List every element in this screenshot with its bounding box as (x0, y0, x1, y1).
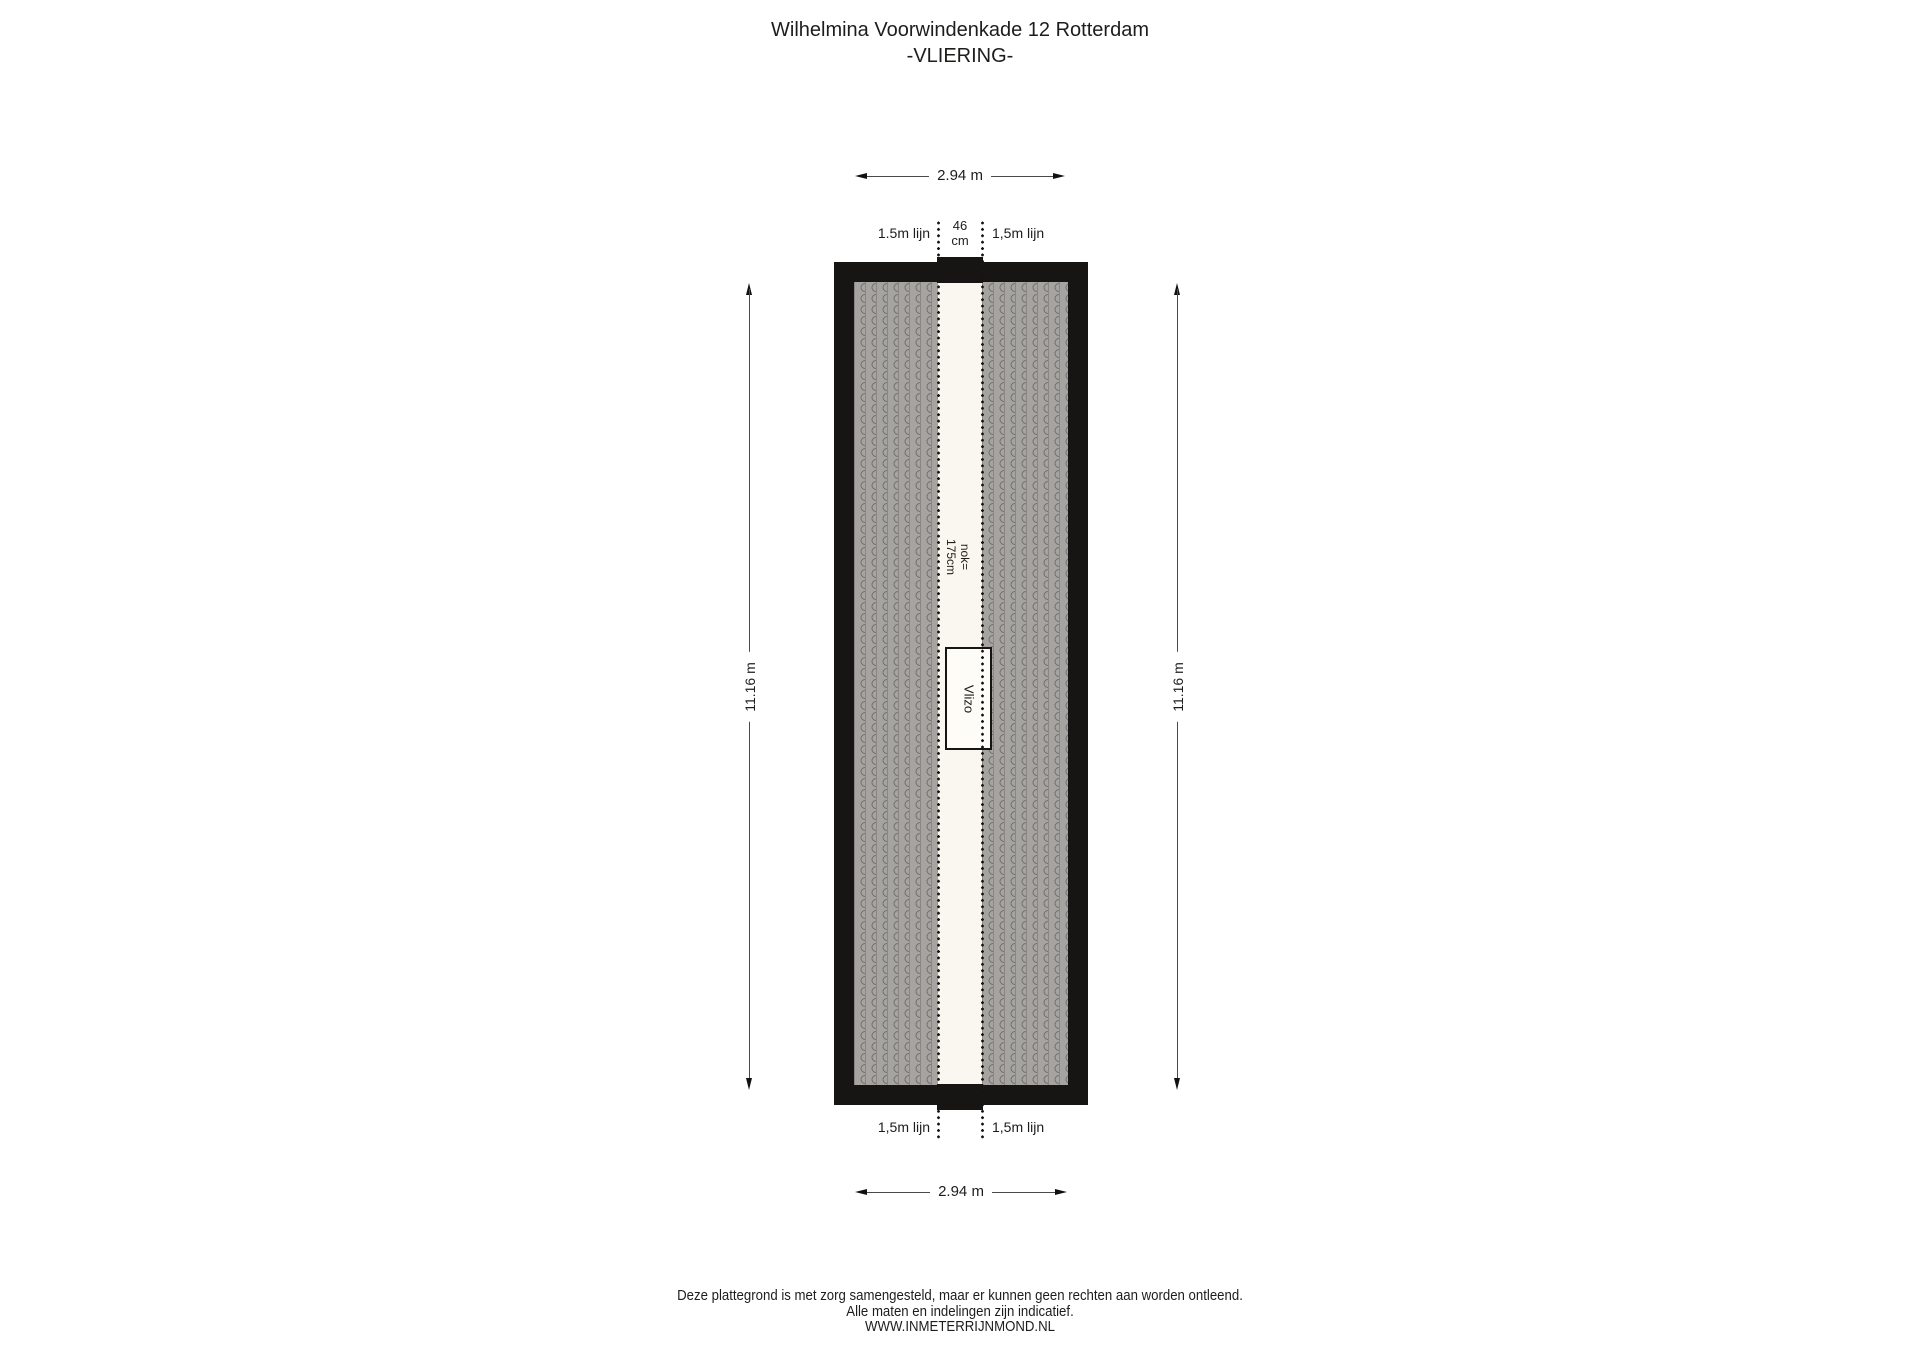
ridge-gap-value: 46 (940, 218, 980, 233)
wall-notch-bottom (937, 1084, 983, 1110)
headroom-dotted-line-right (981, 220, 984, 1140)
roof-slope-hatch-left (854, 282, 938, 1085)
dimension-height-left: 11.16 m (745, 283, 754, 1090)
dimension-line (867, 1192, 930, 1193)
loft-ladder-label: Vlizo (961, 684, 976, 712)
dimension-height-left-label: 11.16 m (739, 652, 761, 722)
arrow-down-icon (1174, 1078, 1180, 1090)
dimension-line (992, 1192, 1055, 1193)
loft-ladder-hatch: Vlizo (945, 647, 992, 750)
title-floor-name: -VLIERING- (0, 43, 1920, 69)
dimension-line (991, 176, 1053, 177)
headroom-label-bottom-right: 1,5m lijn (992, 1119, 1082, 1135)
arrow-down-icon (746, 1078, 752, 1090)
headroom-label-top-left: 1.5m lijn (845, 225, 930, 241)
footer-disclaimer: Deze plattegrond is met zorg samengestel… (115, 1288, 1805, 1335)
ridge-height-line1: nok= (958, 539, 972, 575)
dimension-height-right: 11.16 m (1173, 283, 1182, 1090)
roof-slope-hatch-right (982, 282, 1068, 1085)
headroom-label-bottom-left: 1,5m lijn (845, 1119, 930, 1135)
dimension-width-top: 2.94 m (855, 168, 1065, 184)
floorplan-page: Wilhelmina Voorwindenkade 12 Rotterdam -… (0, 0, 1920, 1358)
title-address: Wilhelmina Voorwindenkade 12 Rotterdam (0, 17, 1920, 43)
dimension-line (867, 176, 929, 177)
dimension-width-bottom-label: 2.94 m (930, 1184, 992, 1200)
arrow-right-icon (1055, 1189, 1067, 1195)
arrow-right-icon (1053, 173, 1065, 179)
page-title: Wilhelmina Voorwindenkade 12 Rotterdam -… (0, 17, 1920, 69)
ridge-height-label: nok= 175cm (944, 539, 972, 575)
dimension-width-bottom: 2.94 m (855, 1184, 1067, 1200)
arrow-left-icon (855, 1189, 867, 1195)
ridge-height-line2: 175cm (944, 539, 958, 575)
headroom-dotted-line-left (937, 220, 940, 1140)
headroom-label-top-right: 1,5m lijn (992, 225, 1082, 241)
footer-website: WWW.INMETERRIJNMOND.NL (115, 1319, 1805, 1335)
footer-line2: Alle maten en indelingen zijn indicatief… (115, 1304, 1805, 1320)
footer-line1: Deze plattegrond is met zorg samengestel… (115, 1288, 1805, 1304)
ridge-gap-label: 46 cm (940, 218, 980, 248)
wall-notch-top (937, 257, 983, 283)
ridge-gap-unit: cm (940, 233, 980, 248)
dimension-width-top-label: 2.94 m (929, 168, 991, 184)
dimension-height-right-label: 11.16 m (1167, 652, 1189, 722)
arrow-left-icon (855, 173, 867, 179)
